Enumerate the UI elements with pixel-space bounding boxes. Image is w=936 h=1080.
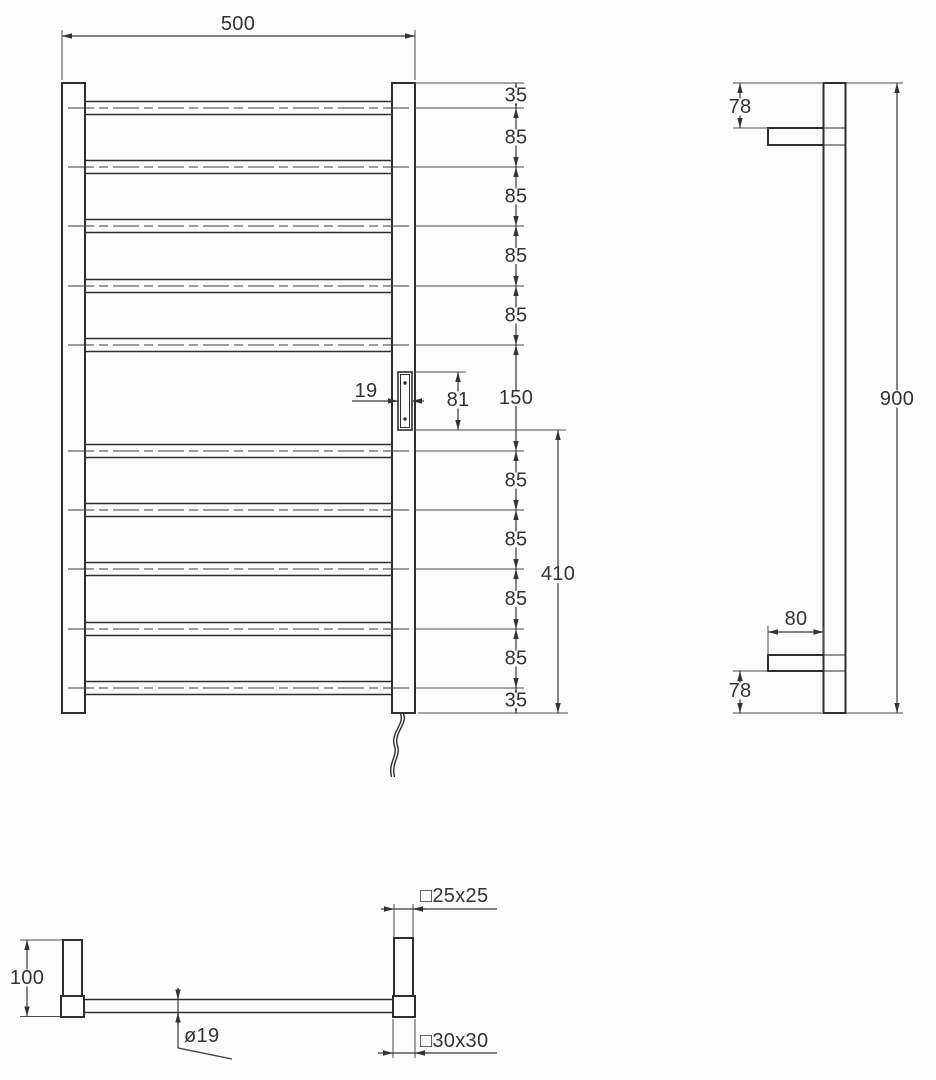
towel-rail-technical-drawing: 500 35 85 85 85 85 150 85 85 85 85 35 41… — [0, 0, 936, 1080]
side-dimension-lines — [740, 83, 897, 713]
dim-front-chain-4: 85 — [505, 305, 528, 327]
front-rungs — [85, 102, 392, 695]
dim-front-chain-8: 85 — [505, 588, 528, 610]
dim-front-chain-7: 85 — [505, 529, 528, 551]
bracket-screw-hole-bottom — [403, 417, 406, 420]
dim-bracket-height: 81 — [447, 389, 470, 411]
dim-side-bracket-depth: 80 — [785, 608, 808, 630]
side-post-bar — [824, 83, 846, 713]
dim-front-chain-1: 85 — [505, 127, 528, 149]
dim-base-profile: □30x30 — [420, 1030, 488, 1052]
front-view: 500 35 85 85 85 85 150 85 85 85 85 35 41… — [62, 13, 578, 777]
dim-tube-diameter: ø19 — [184, 1025, 219, 1047]
dim-post-profile: □25x25 — [420, 885, 488, 907]
drawing-canvas: 500 35 85 85 85 85 150 85 85 85 85 35 41… — [0, 0, 936, 1080]
dim-front-width: 500 — [221, 13, 255, 35]
dim-front-chain-5: 150 — [499, 387, 533, 409]
dim-front-chain-2: 85 — [505, 186, 528, 208]
dim-front-chain-6: 85 — [505, 470, 528, 492]
dim-front-chain-0: 35 — [505, 85, 528, 107]
dim-side-top-offset: 78 — [729, 96, 752, 118]
dim-front-chain-3: 85 — [505, 245, 528, 267]
dim-front-chain-9: 85 — [505, 648, 528, 670]
front-left-post — [62, 83, 85, 713]
bracket-screw-hole-top — [403, 381, 406, 384]
bottom-view: 100 ø19 □25x25 □30x30 — [9, 885, 497, 1059]
front-extension-lines — [62, 30, 568, 713]
dim-front-chain-10: 35 — [505, 690, 528, 712]
bottom-rung — [84, 1000, 393, 1013]
side-view: 78 80 78 900 — [726, 83, 917, 713]
bottom-right-post — [394, 938, 413, 996]
power-cable — [391, 714, 405, 777]
dim-side-bottom-offset: 78 — [729, 680, 752, 702]
dim-front-lower-span: 410 — [541, 563, 575, 585]
front-dimension-lines — [62, 36, 558, 713]
bottom-right-base — [393, 996, 415, 1017]
dim-bottom-post-height: 100 — [10, 967, 44, 989]
bottom-left-base — [61, 996, 84, 1017]
dim-bracket-width: 19 — [355, 380, 378, 402]
dim-side-height: 900 — [880, 388, 914, 410]
bottom-left-post — [63, 940, 82, 996]
